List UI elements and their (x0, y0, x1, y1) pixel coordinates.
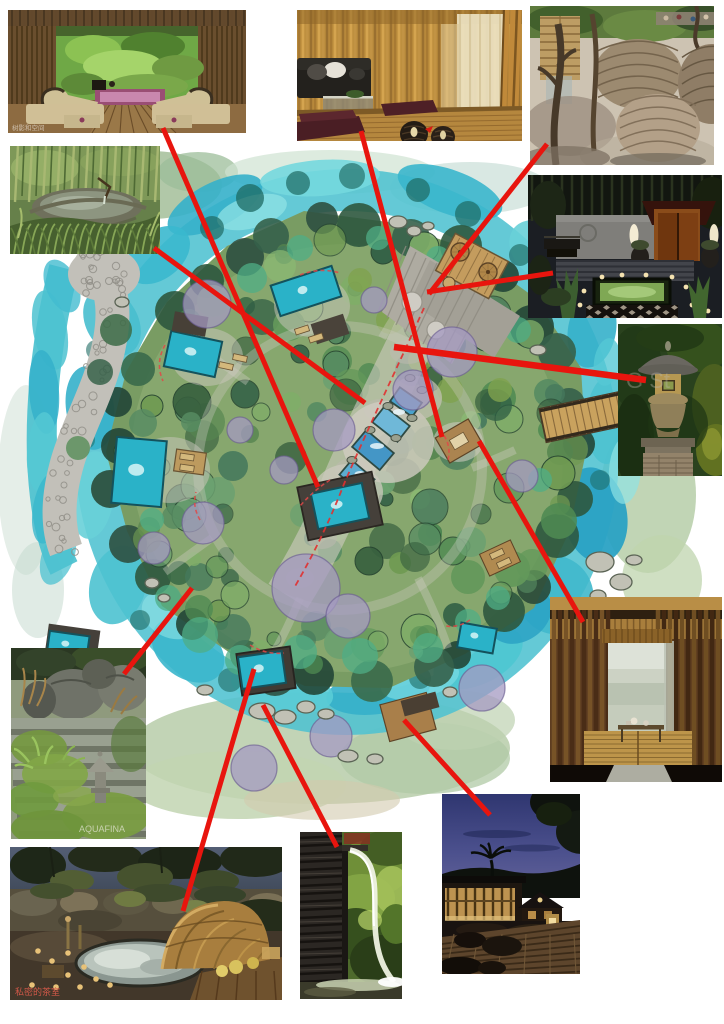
svg-text:树影和空间: 树影和空间 (12, 123, 45, 132)
svg-text:AQUAFINA: AQUAFINA (79, 824, 125, 834)
svg-text:私密的茶室: 私密的茶室 (15, 986, 60, 997)
